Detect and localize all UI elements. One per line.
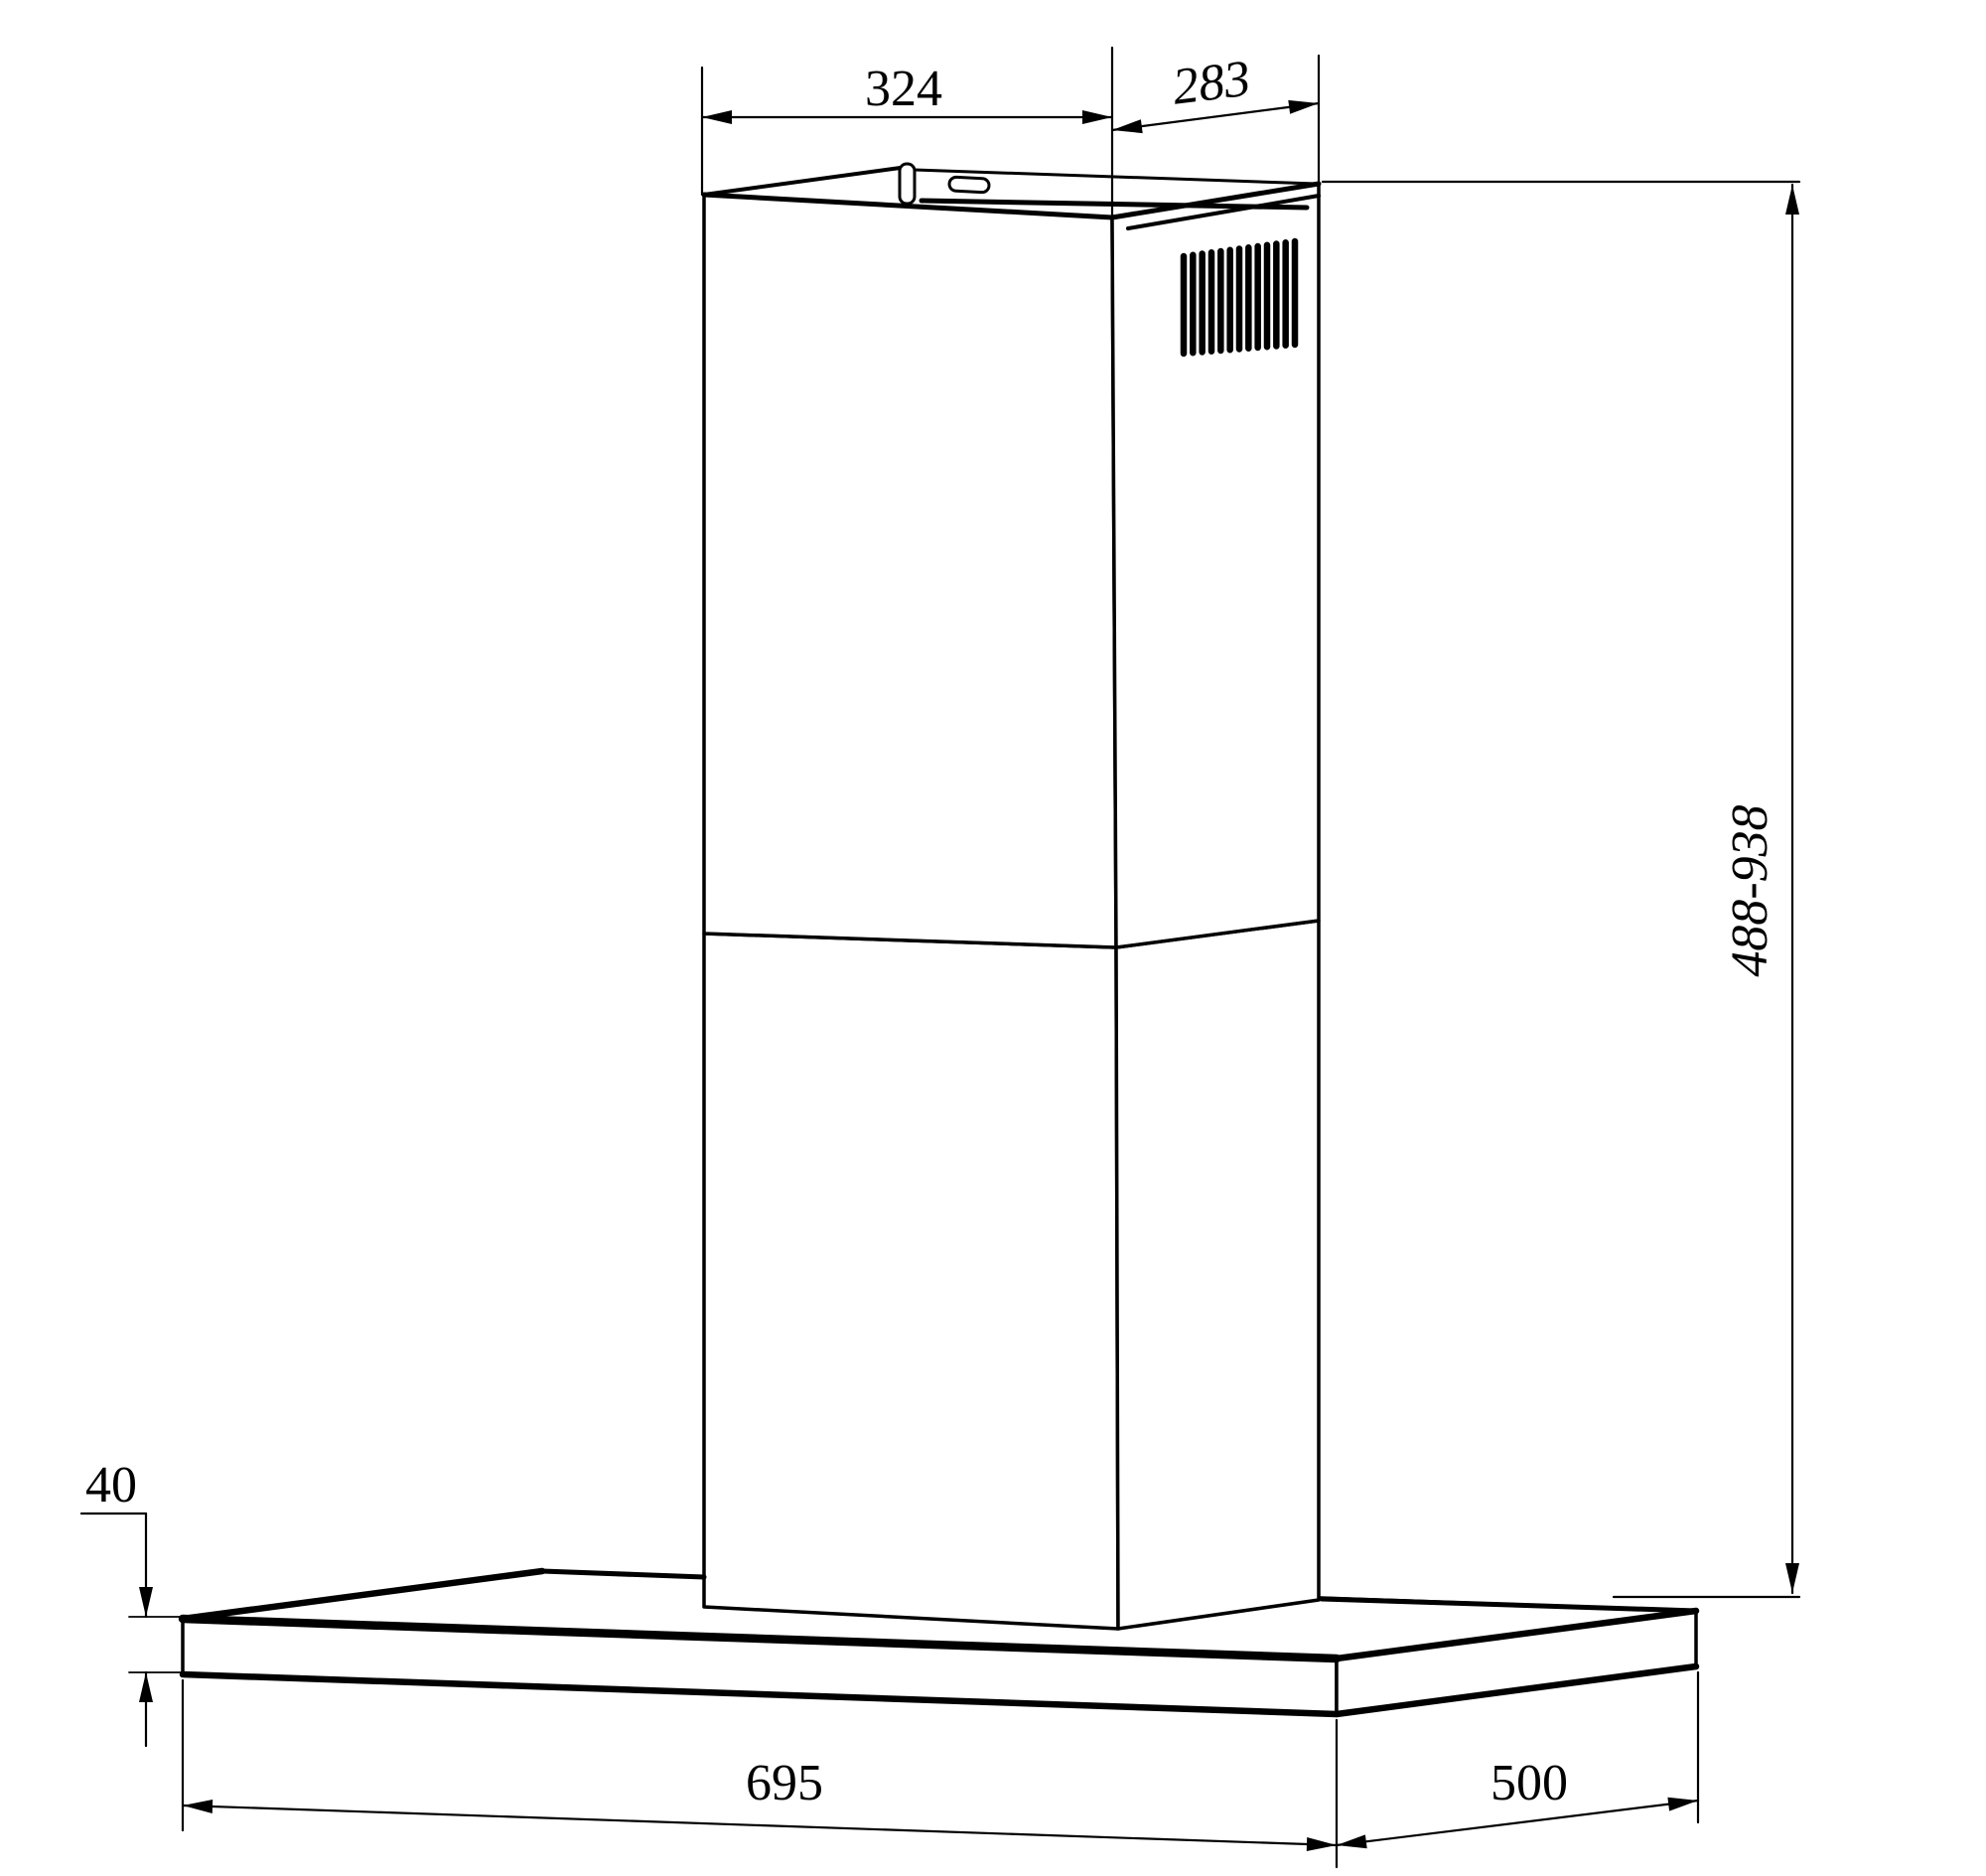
dim-top-depth-label: 283 — [1170, 51, 1253, 116]
dim-base-thickness-label: 40 — [85, 1457, 137, 1514]
chimney-upper-section — [704, 184, 1319, 947]
chimney-lower-section — [704, 921, 1319, 1629]
dim-height-range-label: 488-938 — [1722, 804, 1778, 976]
mounting-bracket — [900, 164, 915, 204]
top-slot — [949, 177, 990, 193]
hood-dimension-drawing: 324 283 488-938 40 695 — [0, 0, 1986, 1876]
chimney-lower-right-face — [1116, 921, 1319, 1629]
dim-top-width-label: 324 — [865, 61, 942, 117]
dim-base-width-label: 695 — [746, 1755, 823, 1811]
chimney-upper-front-face — [704, 195, 1116, 947]
vent-grille — [1184, 241, 1295, 354]
dim-base-depth-label: 500 — [1490, 1755, 1568, 1811]
chimney-lower-front-face — [704, 934, 1118, 1629]
